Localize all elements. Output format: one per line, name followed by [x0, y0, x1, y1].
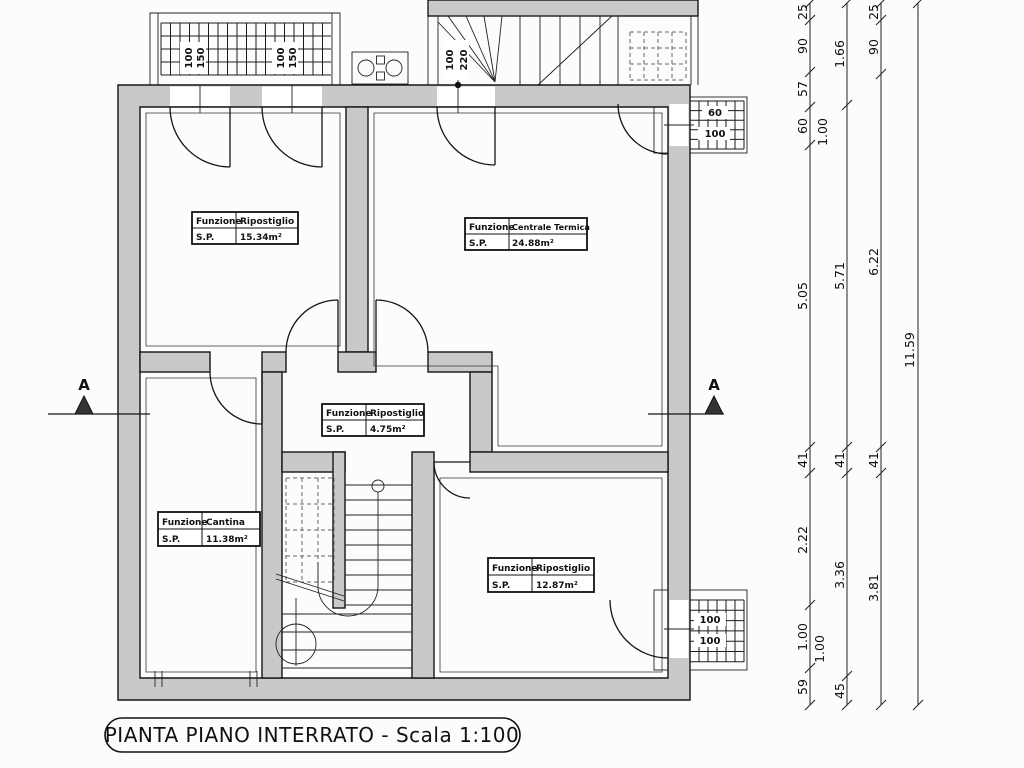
partition-wall [412, 452, 434, 678]
door-opening [437, 87, 495, 107]
dim-value: 90 [866, 39, 881, 55]
walls [118, 85, 690, 700]
dim-value: 2.22 [795, 526, 810, 554]
door-swing [434, 462, 470, 498]
grate-projection-dashed [630, 32, 686, 80]
dim-value: 1.66 [832, 40, 847, 68]
burner-icon [358, 60, 374, 76]
door-swing [210, 372, 262, 424]
top-left-light-well: 100 150 100 150 [150, 13, 340, 85]
room-area: 15.34m² [240, 233, 282, 243]
door-width-label: 100 [445, 50, 456, 71]
dim-value: 3.36 [832, 561, 847, 589]
scanned-floor-plan-page: 100 150 100 150 60 100 100 100 [0, 0, 1024, 768]
grate-width-label: 100 [276, 48, 287, 69]
door-height-label: 220 [459, 50, 470, 71]
dim-value: 59 [795, 679, 810, 695]
burner-square-icon [377, 72, 385, 80]
stair-enclosure-wall [428, 0, 698, 16]
partition-wall [470, 372, 492, 452]
section-arrow-icon [705, 396, 723, 414]
upper-flight-treads [345, 485, 412, 605]
sp-label: S.P. [326, 425, 344, 435]
door-swing [262, 107, 322, 167]
dim-value: 1.00 [795, 623, 810, 651]
room-area: 11.38m² [206, 535, 248, 545]
dim-value: 1.00 [812, 635, 827, 663]
dimension-lines: 25 90 57 60 1.00 5.05 41 2.22 1.00 1.00 … [795, 0, 923, 710]
dim-value: 3.81 [866, 574, 881, 602]
partition-wall [470, 452, 668, 472]
dim-value: 41 [795, 452, 810, 468]
window-swing [610, 600, 668, 658]
room-area: 12.87m² [536, 581, 578, 591]
window-width-label: 60 [708, 108, 722, 119]
sp-label: S.P. [469, 239, 487, 249]
funzione-label: Funzione [162, 518, 208, 528]
section-letter: A [708, 376, 720, 394]
dim-value: 41 [866, 452, 881, 468]
grate-height-label: 150 [196, 48, 207, 69]
partition-wall [262, 372, 282, 678]
stove-outline [352, 52, 408, 84]
dim-value: 45 [832, 683, 847, 699]
dim-value: 5.71 [832, 262, 847, 290]
room-label-cantina: Funzione Cantina S.P. 11.38m² [158, 512, 260, 546]
room-label-ripostiglio-3: Funzione Ripostiglio S.P. 12.87m² [488, 558, 594, 592]
funzione-label: Funzione [492, 564, 538, 574]
door-swing [376, 300, 428, 352]
section-arrow-icon [75, 396, 93, 414]
partition-wall [140, 352, 210, 372]
room-finish-line [374, 113, 662, 446]
dim-value: 25 [795, 4, 810, 20]
room-label-centrale-termica: Funzione Centrale Termica S.P. 24.88m² [465, 218, 590, 250]
room-area: 24.88m² [512, 239, 554, 249]
window-height-label: 100 [705, 129, 726, 140]
dim-value: 11.59 [902, 332, 917, 368]
room-name: Ripostiglio [240, 217, 294, 227]
dim-value: 1.00 [815, 118, 830, 146]
sp-label: S.P. [162, 535, 180, 545]
door-swing [286, 300, 338, 352]
room-name: Ripostiglio [536, 564, 590, 574]
stair-door-size-label: 100 220 [443, 40, 470, 80]
grate-height-label: 150 [288, 48, 299, 69]
walkline-start-circle [372, 480, 384, 492]
grate-width-label: 100 [184, 48, 195, 69]
partition-wall [262, 352, 286, 372]
floor-plan-drawing: 100 150 100 150 60 100 100 100 [0, 0, 1024, 768]
room-area: 4.75m² [370, 425, 406, 435]
grate-grid [690, 600, 744, 662]
sp-label: S.P. [492, 581, 510, 591]
partition-wall [346, 107, 368, 352]
title-text: PIANTA PIANO INTERRATO - Scala 1:100 [105, 723, 519, 747]
sp-label: S.P. [196, 233, 214, 243]
partition-wall [333, 452, 345, 608]
room-label-ripostiglio-2: Funzione Ripostiglio S.P. 4.75m² [322, 404, 424, 436]
door-swing [437, 107, 495, 165]
room-name: Cantina [206, 518, 245, 528]
burner-icon [386, 60, 402, 76]
stove-symbol [352, 52, 408, 84]
funzione-label: Funzione [326, 409, 372, 419]
outer-wall-shell [118, 85, 690, 700]
funzione-label: Funzione [469, 223, 515, 233]
dim-value: 25 [866, 4, 881, 20]
section-letter: A [78, 376, 90, 394]
stair-treads [520, 16, 618, 85]
dim-value: 5.05 [795, 282, 810, 310]
window-width-label: 100 [700, 615, 721, 626]
dim-value: 41 [832, 452, 847, 468]
room-name: Ripostiglio [370, 409, 424, 419]
room-label-ripostiglio-1: Funzione Ripostiglio S.P. 15.34m² [192, 212, 298, 244]
window-height-label: 100 [700, 636, 721, 647]
dim-value: 90 [795, 38, 810, 54]
window-swing [618, 104, 668, 154]
hinge-dot [455, 82, 461, 88]
room-name: Centrale Termica [512, 222, 590, 232]
lower-flight-treads [282, 614, 412, 668]
walkline [318, 492, 378, 616]
partition-wall [428, 352, 492, 372]
drawing-title: PIANTA PIANO INTERRATO - Scala 1:100 [105, 718, 520, 752]
dim-value: 6.22 [866, 248, 881, 276]
funzione-label: Funzione [196, 217, 242, 227]
floor-above-projection [286, 478, 334, 582]
partition-wall [338, 352, 376, 372]
dim-value: 57 [795, 81, 810, 97]
dim-value: 60 [795, 118, 810, 134]
burner-square-icon [377, 56, 385, 64]
door-swing [170, 107, 230, 167]
